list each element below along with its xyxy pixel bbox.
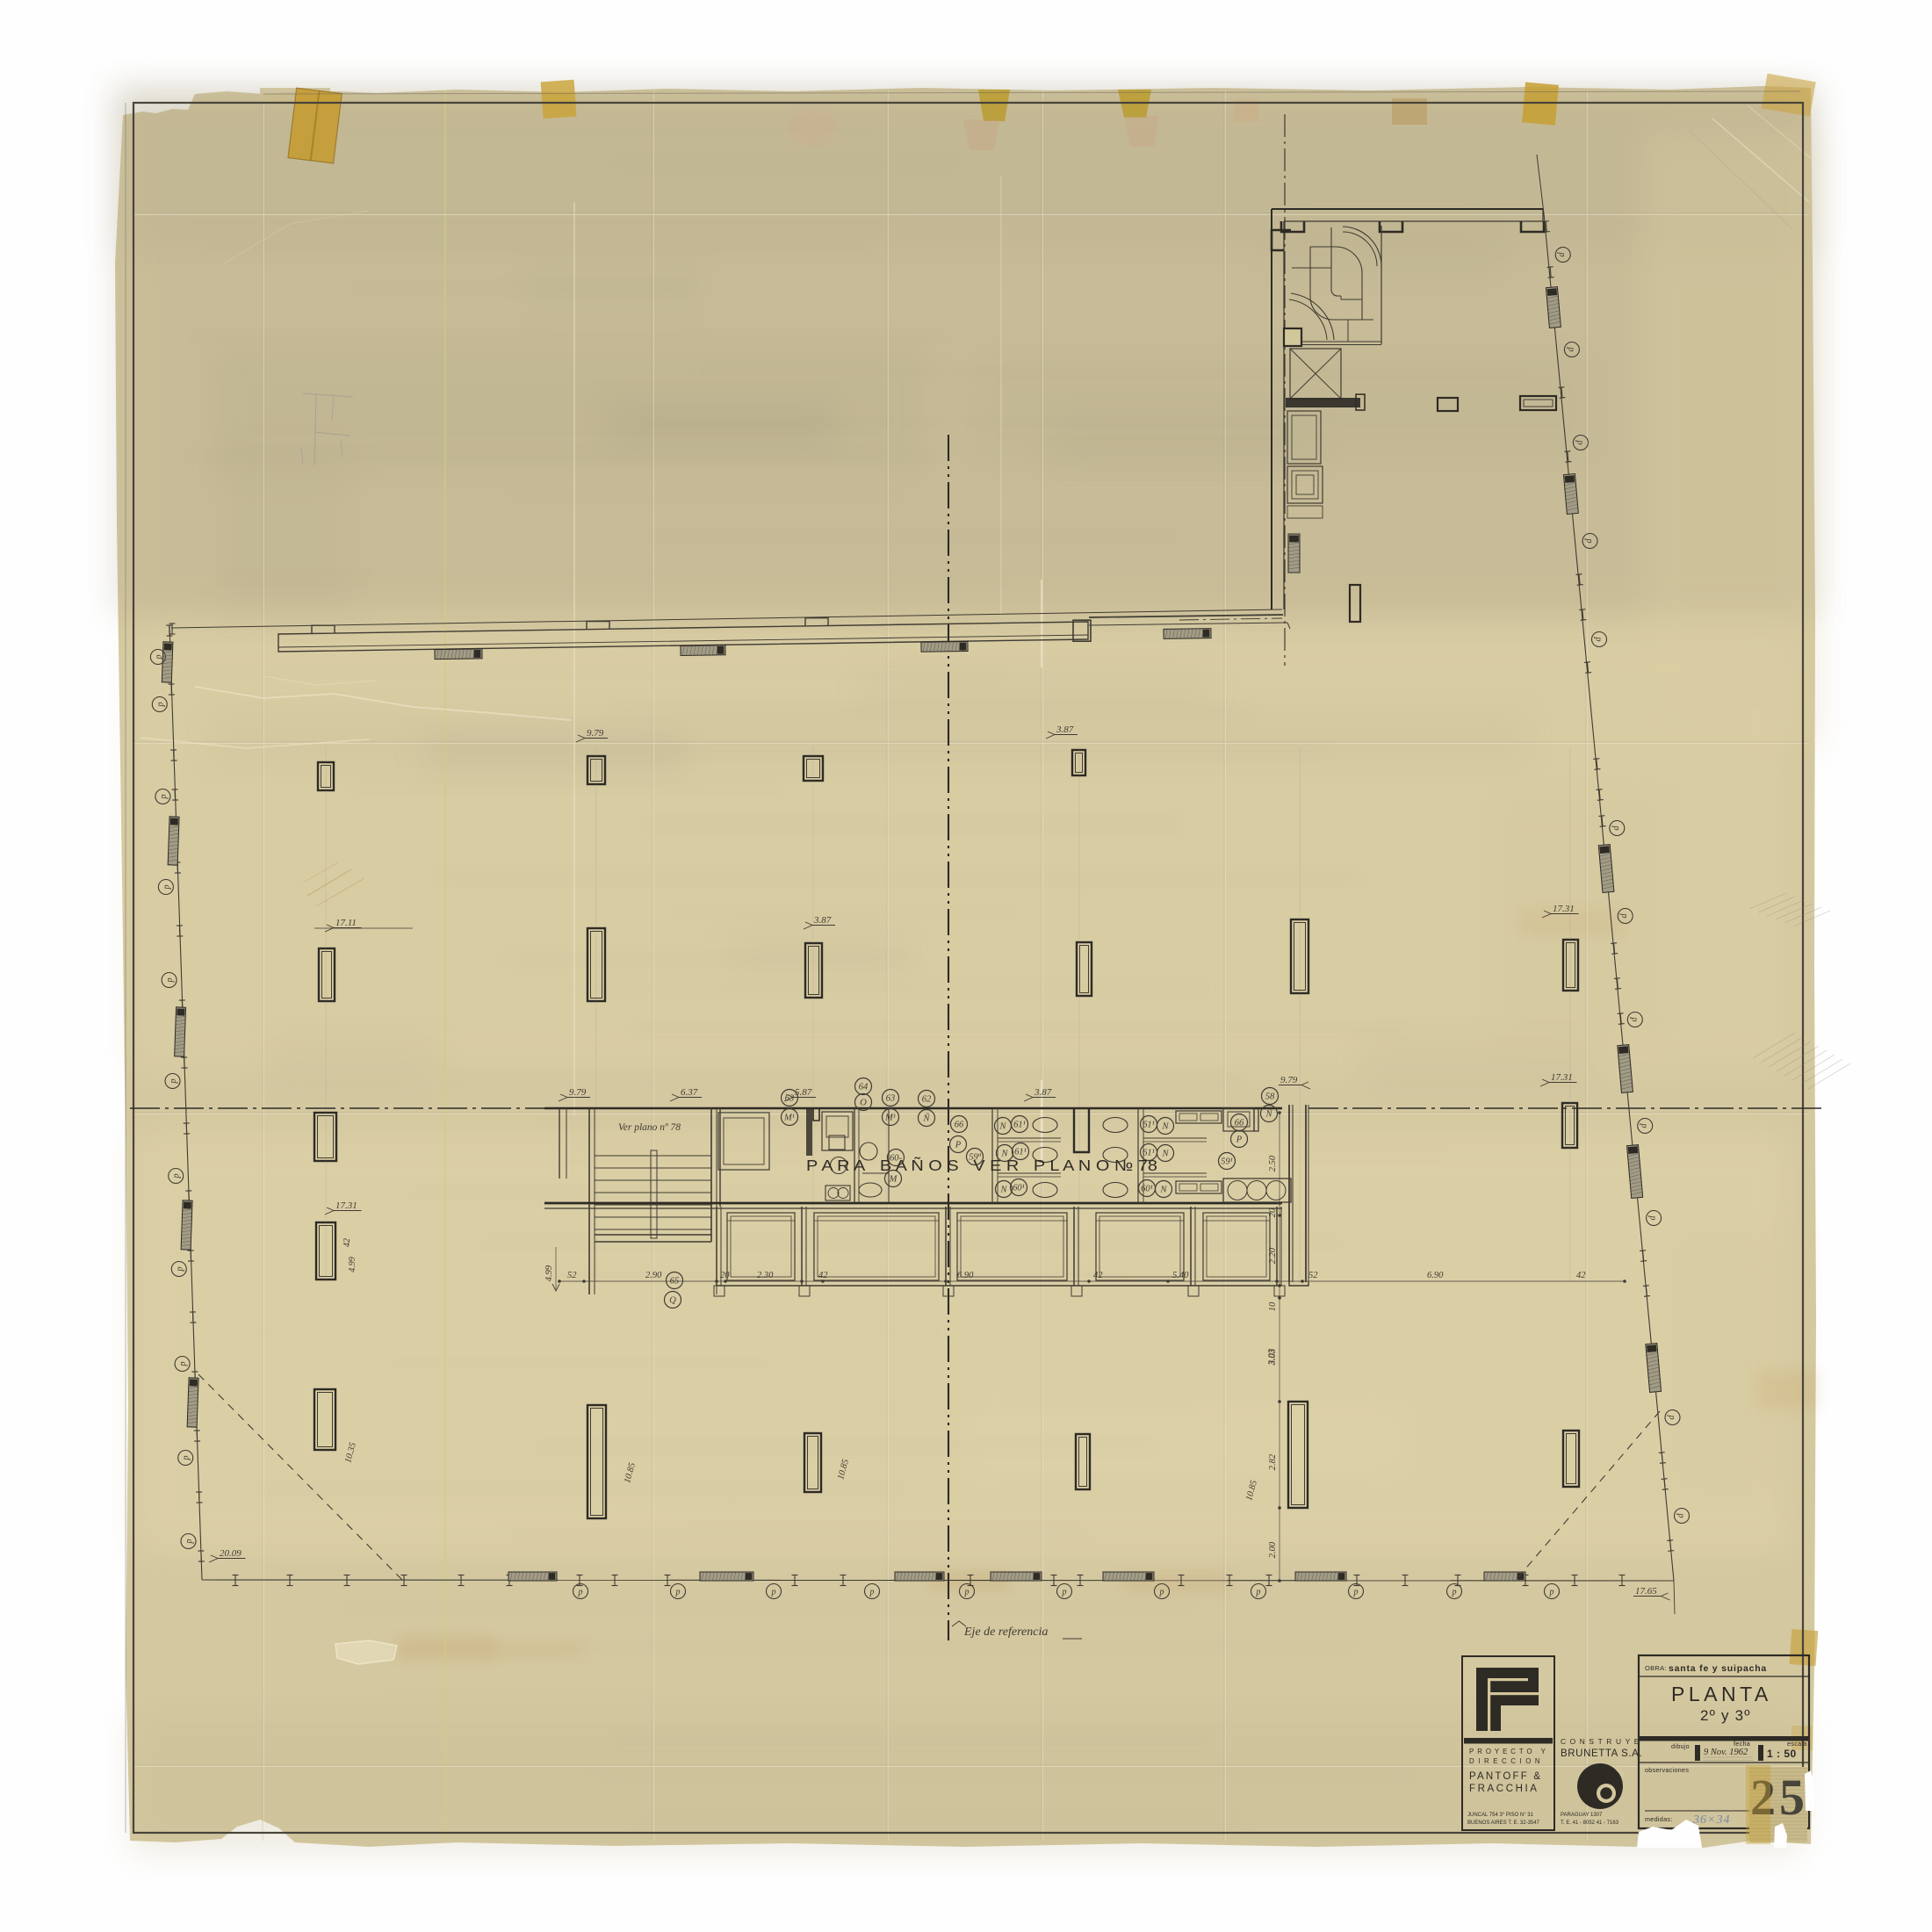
- svg-text:62: 62: [922, 1095, 932, 1105]
- svg-text:p: p: [1640, 1123, 1649, 1128]
- svg-text:p: p: [1159, 1588, 1164, 1597]
- svg-text:36×34: 36×34: [1692, 1813, 1730, 1827]
- svg-text:P A R A B A Ñ O S V E R: P A R A B A Ñ O S V E R P L A N O № 78: [806, 1156, 1157, 1174]
- svg-text:p: p: [178, 1362, 188, 1367]
- svg-text:52: 52: [1308, 1271, 1318, 1280]
- svg-text:p: p: [1557, 252, 1567, 257]
- svg-text:M: M: [889, 1175, 898, 1185]
- svg-text:Ñ: Ñ: [922, 1114, 930, 1124]
- svg-text:p: p: [1594, 637, 1604, 642]
- svg-text:4.99: 4.99: [348, 1257, 357, 1272]
- svg-text:17.65: 17.65: [1635, 1586, 1657, 1597]
- svg-text:64: 64: [859, 1083, 869, 1092]
- svg-text:p: p: [1667, 1415, 1676, 1420]
- svg-text:N: N: [1161, 1122, 1169, 1132]
- svg-text:N: N: [1159, 1186, 1167, 1195]
- svg-text:N: N: [999, 1186, 1007, 1195]
- svg-text:2º y 3º: 2º y 3º: [1700, 1707, 1751, 1724]
- svg-text:M¹: M¹: [884, 1114, 896, 1123]
- svg-text:medidas:: medidas:: [1645, 1815, 1673, 1823]
- svg-text:p: p: [1575, 440, 1584, 445]
- svg-text:p: p: [182, 1456, 191, 1461]
- svg-text:T. E. 41 - 8052 41 - 7163: T. E. 41 - 8052 41 - 7163: [1561, 1820, 1619, 1826]
- svg-text:2.50: 2.50: [1268, 1155, 1278, 1171]
- svg-text:20: 20: [1268, 1207, 1278, 1217]
- svg-text:OBRA:: OBRA:: [1645, 1664, 1667, 1672]
- svg-text:p: p: [1676, 1513, 1686, 1518]
- svg-text:JUNCAL 754 3° PISO N° 31: JUNCAL 754 3° PISO N° 31: [1467, 1813, 1534, 1818]
- svg-text:63: 63: [886, 1094, 896, 1104]
- svg-text:61¹: 61¹: [1013, 1121, 1026, 1130]
- svg-text:CONSTRUYE: CONSTRUYE: [1561, 1737, 1643, 1746]
- svg-text:PLANTA: PLANTA: [1671, 1683, 1772, 1705]
- svg-text:p: p: [964, 1588, 970, 1597]
- svg-text:5.40: 5.40: [1172, 1271, 1189, 1280]
- svg-text:p: p: [1062, 1588, 1067, 1597]
- svg-text:1 : 50: 1 : 50: [1767, 1748, 1797, 1760]
- svg-text:p: p: [578, 1588, 583, 1597]
- svg-text:2.82: 2.82: [1268, 1453, 1278, 1470]
- svg-text:3.87: 3.87: [1056, 724, 1074, 735]
- svg-text:58: 58: [1265, 1092, 1275, 1102]
- svg-text:4.99: 4.99: [544, 1265, 554, 1281]
- svg-text:N: N: [1161, 1150, 1169, 1159]
- svg-text:2.20: 2.20: [1268, 1247, 1278, 1264]
- svg-text:66: 66: [955, 1121, 964, 1130]
- svg-text:p: p: [1584, 538, 1594, 544]
- svg-text:p: p: [1629, 1017, 1639, 1022]
- svg-text:p: p: [1648, 1215, 1658, 1221]
- svg-text:DIRECCION: DIRECCION: [1469, 1757, 1544, 1765]
- svg-text:PROYECTO Y: PROYECTO Y: [1469, 1748, 1549, 1755]
- svg-text:M¹: M¹: [783, 1114, 795, 1123]
- svg-text:6.90: 6.90: [1427, 1271, 1444, 1280]
- svg-text:P: P: [1236, 1135, 1243, 1145]
- svg-text:42: 42: [1576, 1271, 1586, 1280]
- svg-text:O: O: [860, 1099, 867, 1108]
- svg-text:59¹: 59¹: [1221, 1157, 1233, 1167]
- svg-text:9.79: 9.79: [587, 728, 604, 739]
- svg-text:fecha: fecha: [1734, 1740, 1750, 1748]
- svg-text:p: p: [175, 1267, 184, 1272]
- svg-text:42: 42: [1093, 1271, 1103, 1280]
- svg-text:6.37: 6.37: [681, 1087, 698, 1098]
- svg-text:52: 52: [567, 1271, 577, 1280]
- svg-text:60¹: 60¹: [1141, 1185, 1153, 1194]
- svg-text:p: p: [1353, 1588, 1359, 1597]
- svg-text:17.31: 17.31: [1551, 1072, 1573, 1083]
- svg-text:42: 42: [342, 1238, 352, 1247]
- svg-text:20: 20: [720, 1271, 730, 1280]
- svg-text:p: p: [172, 1174, 182, 1179]
- svg-text:observaciones: observaciones: [1645, 1766, 1689, 1774]
- svg-text:N: N: [998, 1122, 1006, 1132]
- svg-text:BRUNETTA S.A.: BRUNETTA S.A.: [1561, 1748, 1642, 1759]
- svg-text:Eje de referencia: Eje de referencia: [963, 1626, 1048, 1639]
- svg-text:dibujo: dibujo: [1671, 1742, 1690, 1750]
- svg-text:66: 66: [1235, 1119, 1244, 1128]
- svg-text:p: p: [869, 1588, 875, 1597]
- svg-text:p: p: [1619, 913, 1629, 919]
- svg-text:Ñ: Ñ: [1265, 1109, 1272, 1120]
- svg-text:61¹: 61¹: [1143, 1121, 1155, 1130]
- svg-text:2.90: 2.90: [645, 1271, 662, 1280]
- svg-text:p: p: [771, 1588, 776, 1597]
- svg-text:9.79: 9.79: [569, 1087, 587, 1098]
- svg-text:20.09: 20.09: [220, 1548, 241, 1559]
- svg-text:9 Nov. 1962: 9 Nov. 1962: [1704, 1748, 1748, 1757]
- svg-text:17.11: 17.11: [335, 918, 357, 928]
- svg-text:p: p: [165, 978, 175, 984]
- svg-text:p: p: [675, 1588, 681, 1597]
- svg-text:PARAGUAY 1307: PARAGUAY 1307: [1561, 1813, 1603, 1818]
- svg-text:p: p: [1566, 347, 1575, 352]
- svg-text:2.30: 2.30: [757, 1271, 774, 1280]
- svg-text:3.87: 3.87: [1034, 1087, 1052, 1098]
- svg-text:escala: escala: [1787, 1740, 1807, 1748]
- svg-text:p: p: [1452, 1588, 1457, 1597]
- svg-text:FRACCHIA: FRACCHIA: [1469, 1784, 1539, 1794]
- svg-text:65: 65: [670, 1277, 680, 1287]
- svg-text:p: p: [159, 795, 169, 800]
- svg-text:Q: Q: [669, 1296, 676, 1306]
- svg-text:p: p: [1611, 825, 1621, 831]
- svg-text:3.87: 3.87: [813, 915, 832, 926]
- svg-text:p: p: [1256, 1588, 1261, 1597]
- svg-text:santa fe y suipacha: santa fe y suipacha: [1669, 1663, 1767, 1674]
- svg-text:P: P: [955, 1141, 962, 1150]
- svg-text:17.31: 17.31: [1553, 904, 1575, 914]
- svg-text:17.31: 17.31: [335, 1200, 357, 1211]
- svg-text:9.79: 9.79: [1280, 1075, 1298, 1085]
- svg-text:p: p: [162, 885, 171, 890]
- svg-text:2.00: 2.00: [1268, 1541, 1278, 1558]
- svg-text:p: p: [169, 1079, 178, 1085]
- svg-text:p: p: [154, 655, 163, 660]
- svg-text:60¹: 60¹: [1013, 1184, 1025, 1193]
- svg-text:PANTOFF &: PANTOFF &: [1469, 1771, 1542, 1782]
- svg-text:3.03: 3.03: [1267, 1349, 1277, 1366]
- svg-text:5.87: 5.87: [795, 1087, 812, 1098]
- svg-text:p: p: [1549, 1588, 1554, 1597]
- svg-text:Ver plano nº 78: Ver plano nº 78: [618, 1122, 681, 1133]
- svg-text:BUENOS AIRES T. E. 32-3547: BUENOS AIRES T. E. 32-3547: [1467, 1820, 1540, 1826]
- svg-text:6.90: 6.90: [957, 1271, 974, 1280]
- svg-text:10: 10: [1268, 1301, 1278, 1311]
- svg-text:p: p: [155, 703, 165, 708]
- svg-text:p: p: [184, 1539, 194, 1545]
- svg-text:42: 42: [818, 1271, 828, 1280]
